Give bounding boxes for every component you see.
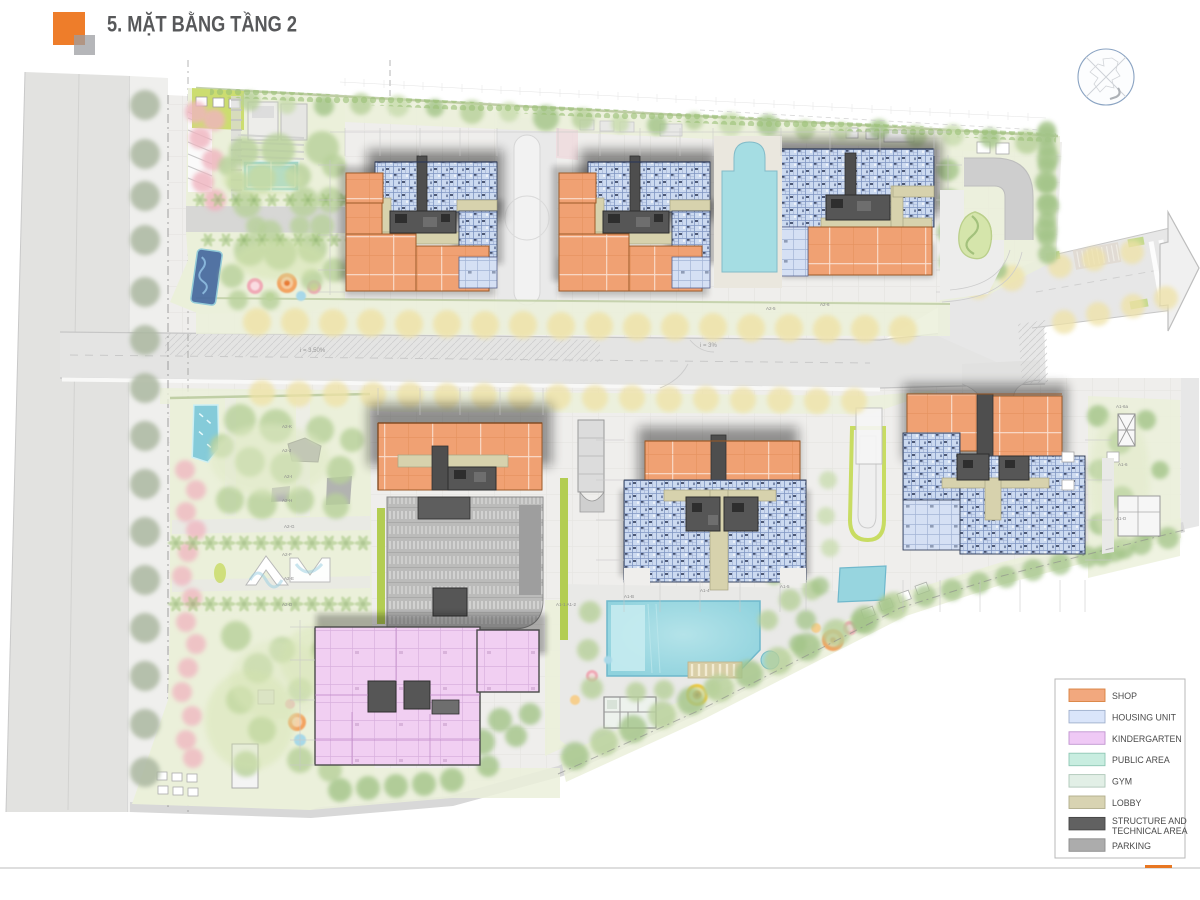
svg-text:STRUCTURE AND: STRUCTURE AND <box>1112 816 1187 826</box>
svg-text:A1-1 A1-2: A1-1 A1-2 <box>556 602 577 607</box>
svg-text:A2-6: A2-6 <box>820 302 830 307</box>
svg-text:PUBLIC AREA: PUBLIC AREA <box>1112 755 1170 765</box>
svg-text:KINDERGARTEN: KINDERGARTEN <box>1112 734 1182 744</box>
svg-text:A1-4: A1-4 <box>700 588 710 593</box>
svg-text:i = 3.50%: i = 3.50% <box>300 348 326 354</box>
svg-text:A2-E: A2-E <box>284 576 294 581</box>
svg-text:SHOP: SHOP <box>1112 691 1137 701</box>
svg-text:A2-F: A2-F <box>282 552 292 557</box>
svg-text:5. MẶT BẰNG TẦNG 2: 5. MẶT BẰNG TẦNG 2 <box>107 12 297 37</box>
svg-text:A1-D: A1-D <box>1116 516 1127 521</box>
svg-text:A1-6: A1-6 <box>1118 462 1128 467</box>
svg-text:HOUSING UNIT: HOUSING UNIT <box>1112 712 1177 722</box>
svg-text:A2-D: A2-D <box>282 602 293 607</box>
svg-text:i = 3%: i = 3% <box>700 343 718 349</box>
svg-text:A1-5: A1-5 <box>780 584 790 589</box>
svg-text:A2-5: A2-5 <box>766 306 776 311</box>
svg-text:A1-B: A1-B <box>624 594 634 599</box>
svg-text:TECHNICAL AREA: TECHNICAL AREA <box>1112 826 1188 836</box>
svg-text:A1-6a: A1-6a <box>1116 404 1129 409</box>
svg-text:A2-K: A2-K <box>282 424 292 429</box>
svg-text:A2-I: A2-I <box>284 474 292 479</box>
svg-text:PARKING: PARKING <box>1112 841 1151 851</box>
svg-text:GYM: GYM <box>1112 777 1132 787</box>
svg-text:LOBBY: LOBBY <box>1112 798 1141 808</box>
svg-text:A2-G: A2-G <box>284 524 295 529</box>
svg-text:A2-H: A2-H <box>282 498 292 503</box>
svg-text:A2-J: A2-J <box>282 448 291 453</box>
